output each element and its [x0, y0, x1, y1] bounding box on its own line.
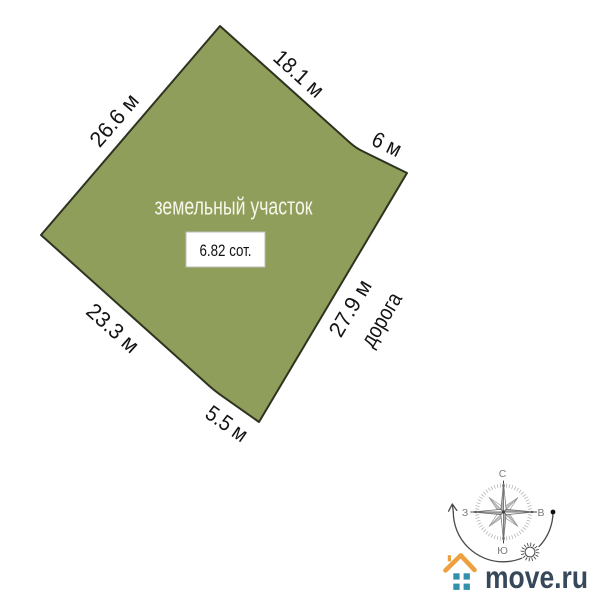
svg-text:В: В — [537, 507, 544, 519]
svg-text:С: С — [499, 468, 507, 480]
svg-text:move.ru: move.ru — [485, 559, 588, 595]
svg-text:земельный участок: земельный участок — [155, 193, 313, 220]
svg-text:6.82 сот.: 6.82 сот. — [200, 241, 252, 260]
svg-text:З: З — [462, 507, 468, 519]
svg-text:Ю: Ю — [497, 545, 508, 557]
